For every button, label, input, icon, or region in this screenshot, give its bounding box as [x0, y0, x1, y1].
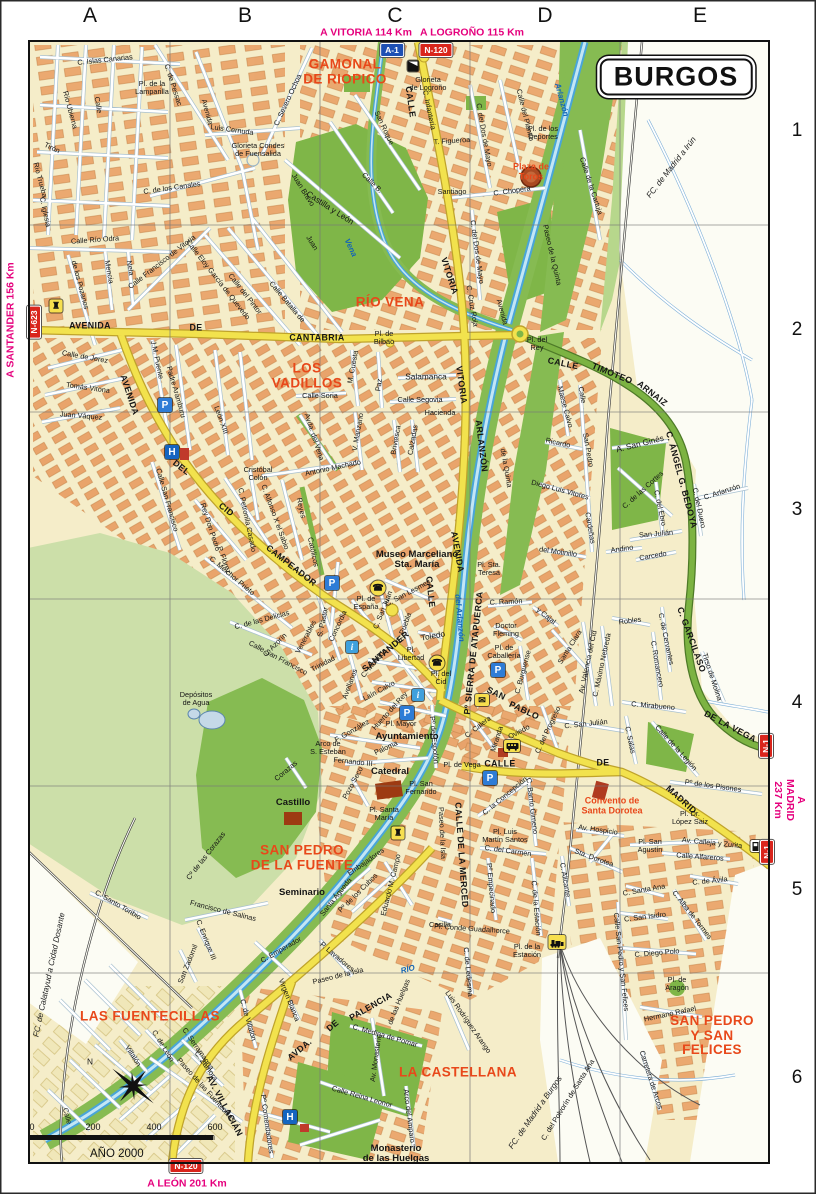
map-title-box: BURGOS — [600, 59, 753, 96]
grid-column-label: D — [537, 4, 552, 28]
scale-bar-line — [30, 1135, 213, 1140]
scale-tick-label: 0 — [29, 1122, 34, 1132]
scale-bar: 0200400600 m AÑO 2000 — [30, 1122, 230, 1168]
grid-row-label: 3 — [792, 499, 803, 521]
compass-rose — [105, 1056, 161, 1112]
map-title: BURGOS — [614, 62, 739, 92]
grid-row-label: 4 — [792, 692, 803, 714]
scale-tick-label: 400 — [146, 1122, 161, 1132]
edge-distance-label: A LEÓN 201 Km — [147, 1178, 227, 1189]
edge-distance-label: A VITORIA 114 Km — [320, 27, 412, 38]
grid-column-label: B — [238, 4, 252, 28]
grid-column-label: A — [83, 4, 97, 28]
map-page: BURGOS 0200400600 m AÑO 2000 ABCDE123456… — [0, 0, 816, 1194]
edge-distance-label: A LOGROÑO 115 Km — [420, 27, 524, 38]
grid-column-label: C — [387, 4, 402, 28]
edge-distance-label: A SANTANDER 156 Km — [5, 262, 16, 378]
grid-row-label: 6 — [792, 1067, 803, 1089]
scale-year: AÑO 2000 — [90, 1148, 144, 1160]
grid-row-label: 1 — [792, 120, 803, 142]
edge-distance-label: A MADRID 237 Km — [772, 779, 806, 821]
scale-tick-label: 200 — [85, 1122, 100, 1132]
map-canvas — [28, 40, 770, 1164]
grid-row-label: 2 — [792, 319, 803, 341]
grid-column-label: E — [693, 4, 707, 28]
grid-row-label: 5 — [792, 879, 803, 901]
